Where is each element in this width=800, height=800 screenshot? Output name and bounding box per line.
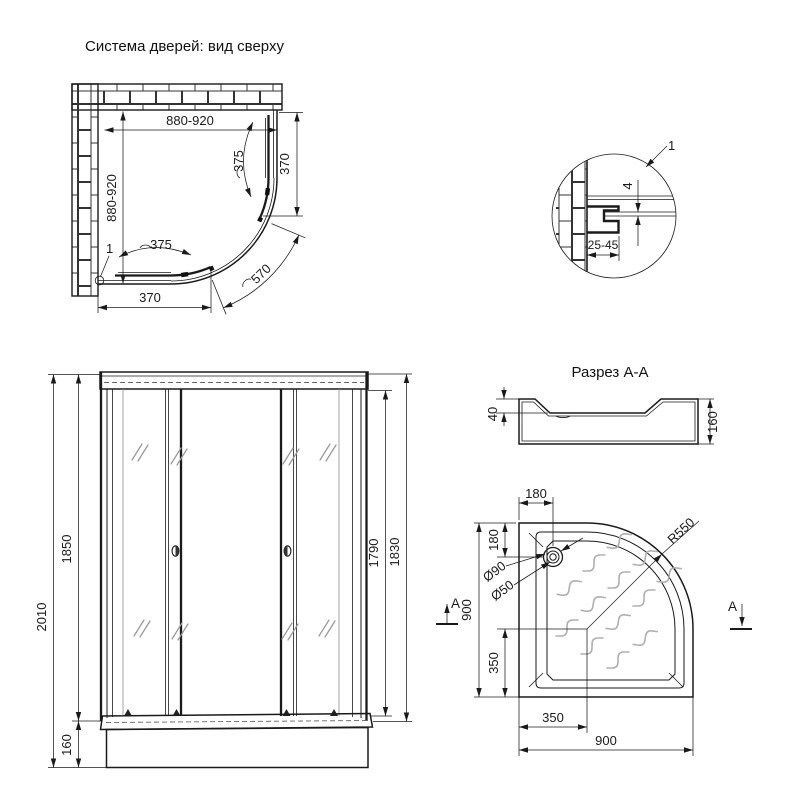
dim-opening-arc: 570 <box>248 261 274 287</box>
detail-wall-hatching <box>556 150 587 282</box>
frame-and-glass-posts <box>101 372 367 721</box>
dim-door-height: 1790 <box>366 539 381 568</box>
dim-door-right: 375 <box>231 150 246 172</box>
section-dimensions: 40 160 <box>485 387 720 444</box>
dim-cabin-height: 1850 <box>59 535 74 564</box>
door-handles <box>172 546 291 556</box>
dim-drain-offset-x: 180 <box>525 486 547 501</box>
tray-front <box>101 714 373 768</box>
dim-total-height: 160 <box>705 411 720 433</box>
dim-depth: 900 <box>459 599 474 621</box>
dim-glass-gap: 4 <box>620 182 635 189</box>
plan-callout-label: 1 <box>106 241 113 256</box>
drain <box>544 548 563 567</box>
plan-title: Система дверей: вид сверху <box>85 38 284 55</box>
detail-content <box>556 150 680 282</box>
dim-adjust-range: 25-45 <box>588 238 619 252</box>
door-roller <box>257 217 263 223</box>
dim-door-bottom: 375 <box>150 237 172 252</box>
dim-radius: R550 <box>664 515 697 547</box>
dim-width: 880-920 <box>166 113 214 128</box>
sliding-door-bottom <box>115 266 214 278</box>
dim-drain-offset-y: 180 <box>486 529 501 551</box>
section-marker-left: А <box>451 596 460 611</box>
glass-reflection-marks <box>132 444 336 640</box>
section-marker-right: А <box>728 599 737 614</box>
detail-view: 4 25-45 1 <box>552 138 680 282</box>
front-dimensions: 2010 1850 160 1790 1830 <box>34 374 412 768</box>
dim-segment-right: 370 <box>277 153 292 175</box>
dim-total-height: 2010 <box>34 603 49 632</box>
technical-drawing-sheet: Система дверей: вид сверху <box>0 0 800 800</box>
drawing-canvas: Система дверей: вид сверху <box>0 0 800 800</box>
wall-profile-section <box>587 207 619 233</box>
dim-width: 900 <box>595 733 617 748</box>
dim-center-from-bottom: 350 <box>486 652 501 674</box>
door-handle <box>181 272 189 277</box>
dim-tray-height: 160 <box>59 734 74 756</box>
frame-profiles <box>98 110 277 284</box>
dim-rim-depth: 40 <box>485 407 500 421</box>
section-title: Разрез А-А <box>572 364 649 381</box>
tray-section-profile <box>519 399 698 444</box>
sliding-door-right <box>257 115 270 222</box>
dim-segment-bottom: 370 <box>139 290 161 305</box>
door-handle <box>265 188 270 196</box>
top-rail <box>100 372 368 389</box>
tray-top-view: 180 180 900 350 350 900 R550 Ø90 <box>436 486 752 756</box>
front-view: 2010 1850 160 1790 1830 <box>34 372 412 768</box>
plan-view: Система дверей: вид сверху <box>72 38 305 314</box>
anti-slip-pattern <box>556 532 681 668</box>
detail-callout-label: 1 <box>668 138 675 153</box>
dim-center-from-left: 350 <box>542 710 564 725</box>
tray-dimensions: 180 180 900 350 350 900 R550 Ø90 <box>459 486 699 756</box>
dim-frame-height: 1830 <box>387 538 402 567</box>
section-view: Разрез А-А 40 160 <box>485 364 720 444</box>
dim-depth: 880-920 <box>104 174 119 222</box>
